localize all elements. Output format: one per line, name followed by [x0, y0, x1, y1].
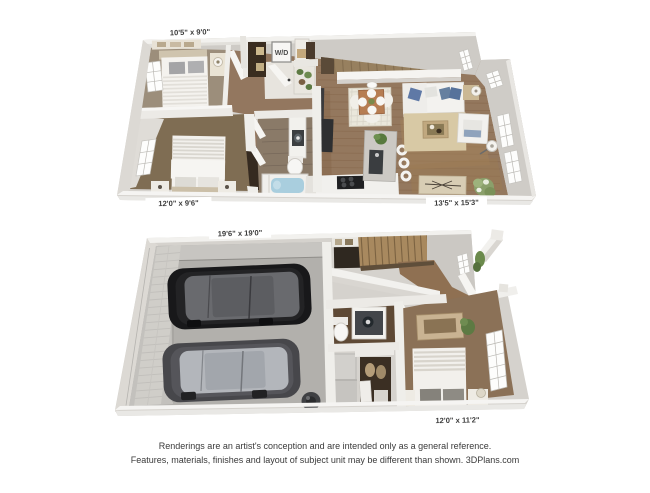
svg-text:W/D: W/D — [275, 50, 289, 57]
svg-text:13'5" x 15'3": 13'5" x 15'3" — [434, 198, 479, 208]
svg-text:Features, materials, finishes: Features, materials, finishes and layout… — [131, 455, 520, 465]
svg-text:Renderings are an artist's con: Renderings are an artist's conception an… — [159, 441, 491, 451]
svg-text:12'0" x 11'2": 12'0" x 11'2" — [435, 415, 480, 425]
svg-text:19'6" x 19'0": 19'6" x 19'0" — [218, 228, 263, 238]
svg-text:10'5" x 9'0": 10'5" x 9'0" — [170, 27, 211, 37]
svg-text:12'0" x 9'6": 12'0" x 9'6" — [158, 198, 199, 208]
